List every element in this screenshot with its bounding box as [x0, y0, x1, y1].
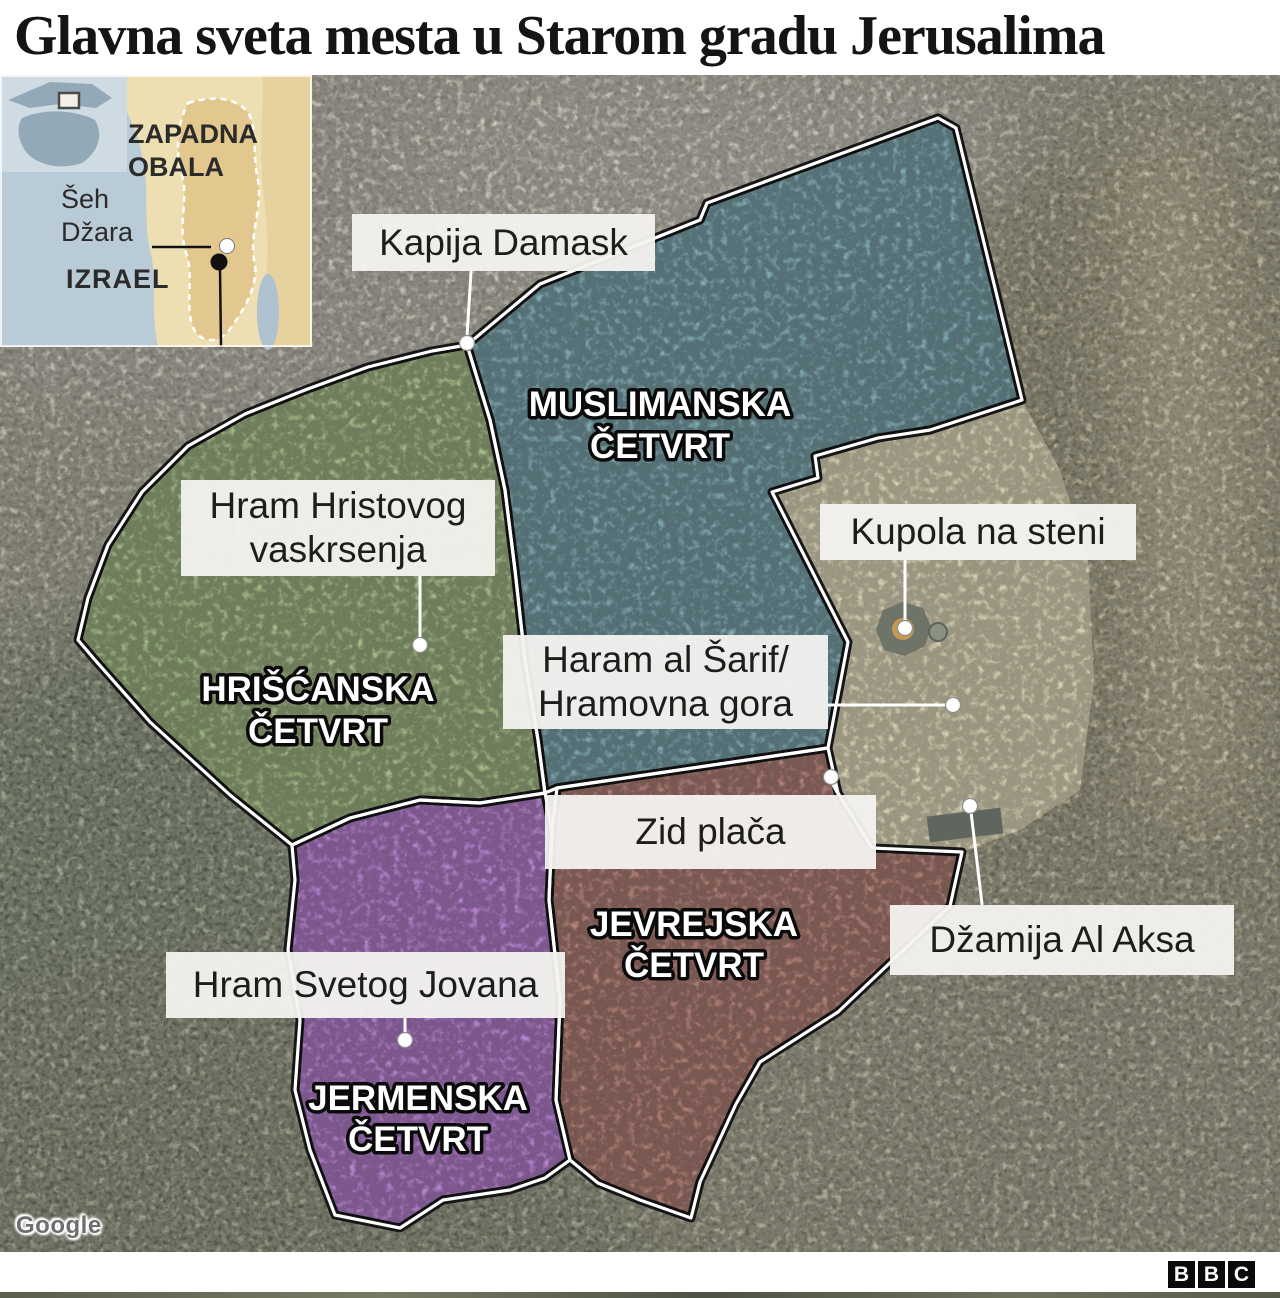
inset-israel-label: IZRAEL [66, 263, 170, 296]
bbc-logo-square: B [1168, 1261, 1195, 1288]
sheikh-jarrah-dot [220, 239, 235, 254]
st-john-marker [398, 1033, 413, 1048]
damascus-gate-marker [460, 336, 475, 351]
label-western-wall: Zid plača [545, 795, 876, 869]
bbc-logo: B B C [1168, 1261, 1255, 1288]
world-locator-box [59, 93, 79, 108]
bbc-logo-square: B [1198, 1261, 1225, 1288]
footer: B B C [0, 1252, 1280, 1292]
holy-sepulchre-marker [413, 638, 428, 653]
temple-mount-marker [946, 698, 961, 713]
muslim-quarter-label: MUSLIMANSKA [529, 385, 791, 424]
al-aqsa-marker [963, 799, 978, 814]
label-temple-mount: Haram al Šarif/ Hramovna gora [503, 635, 828, 729]
label-dome-of-rock: Kupola na steni [820, 504, 1136, 560]
jewish-quarter-label: JEVREJSKA [590, 905, 798, 944]
dead-sea [257, 274, 279, 350]
inset-locator-map [0, 75, 312, 350]
bottom-map-strip [0, 1292, 1280, 1298]
dome-of-rock-marker [898, 621, 913, 636]
armenian-quarter-label: JERMENSKA [308, 1079, 528, 1118]
jerusalem-dot [211, 254, 228, 271]
muslim-quarter-label-2: ČETVRT [590, 426, 730, 466]
western-wall-marker [824, 770, 839, 785]
infographic: Glavna sveta mesta u Starom gradu Jerusa… [0, 0, 1280, 1298]
page-title: Glavna sveta mesta u Starom gradu Jerusa… [14, 0, 1274, 72]
inset-sheikh-jarrah-label: Šeh Džara [61, 183, 133, 249]
inset-west-bank-label: ZAPADNA OBALA [128, 118, 258, 184]
jewish-quarter-label-2: ČETVRT [624, 945, 764, 985]
christian-quarter-label-2: ČETVRT [248, 711, 388, 751]
small-dome [929, 623, 947, 641]
label-damascus-gate: Kapija Damask [352, 214, 655, 271]
label-al-aqsa: Džamija Al Aksa [890, 905, 1234, 975]
google-watermark: Google [16, 1212, 102, 1240]
armenian-quarter-label-2: ČETVRT [348, 1119, 488, 1159]
bbc-logo-square: C [1228, 1261, 1255, 1288]
christian-quarter-label: HRIŠĆANSKA [201, 669, 434, 709]
label-st-john: Hram Svetog Jovana [166, 952, 565, 1018]
label-holy-sepulchre: Hram Hristovog vaskrsenja [181, 480, 495, 576]
